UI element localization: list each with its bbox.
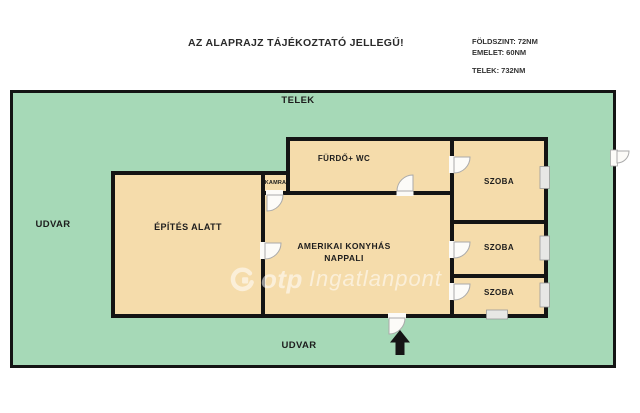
yard-bottom-label: UDVAR bbox=[259, 340, 339, 351]
room-szoba-1-label: SZOBA bbox=[450, 177, 548, 186]
room-nappali-label: AMERIKAI KONYHÁS NAPPALI bbox=[261, 240, 427, 264]
floorplan-page: AZ ALAPRAJZ TÁJÉKOZTATÓ JELLEGŰ! FÖLDSZI… bbox=[0, 0, 640, 413]
area-info-block: FÖLDSZINT: 72NM EMELET: 60NM TELEK: 732N… bbox=[472, 37, 538, 77]
room-furdo-wc-label: FÜRDŐ+ WC bbox=[288, 154, 400, 163]
room-nappali-label-line2: NAPPALI bbox=[261, 252, 427, 264]
gate-icon bbox=[617, 151, 629, 163]
room-szoba-3-label: SZOBA bbox=[450, 288, 548, 297]
yard-left-label: UDVAR bbox=[13, 219, 93, 230]
area-info-ground-floor: FÖLDSZINT: 72NM bbox=[472, 37, 538, 48]
room-nappali-label-line1: AMERIKAI KONYHÁS bbox=[261, 240, 427, 252]
area-info-lot: TELEK: 732NM bbox=[472, 66, 538, 77]
room-furdo-wc bbox=[286, 137, 454, 195]
room-epites-alatt-label: ÉPÍTÉS ALATT bbox=[111, 222, 265, 232]
room-szoba-2-label: SZOBA bbox=[450, 243, 548, 252]
room-kamra-label: KAMRA bbox=[261, 180, 290, 186]
area-info-upper-floor: EMELET: 60NM bbox=[472, 48, 538, 59]
room-epites-alatt bbox=[111, 171, 265, 318]
plot-label: TELEK bbox=[258, 95, 338, 106]
